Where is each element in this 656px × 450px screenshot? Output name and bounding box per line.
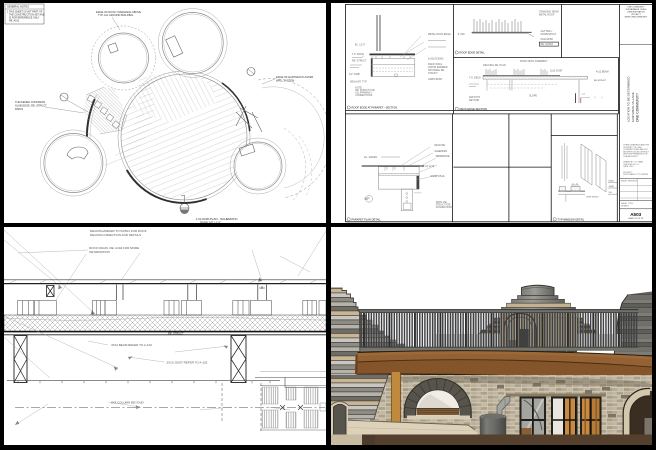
svg-text:GWB FINISH: GWB FINISH (428, 78, 442, 81)
svg-text:LOCATION TO BE DETERMINED: LOCATION TO BE DETERMINED (627, 76, 631, 122)
svg-text:PARAPET PLAN DETAIL: PARAPET PLAN DETAIL (352, 217, 382, 221)
svg-text:JAMB: JAMB (609, 185, 615, 188)
svg-text:DECKING: DECKING (434, 144, 445, 147)
svg-text:RE: STRUCT: RE: STRUCT (594, 80, 607, 82)
svg-text:MEMBRANE: MEMBRANE (436, 155, 450, 158)
svg-text:TYP. ALL AROUND BUILDING: TYP. ALL AROUND BUILDING (98, 13, 133, 17)
svg-text:SLAB EDGE, RE: STRUCT: SLAB EDGE, RE: STRUCT (15, 103, 47, 107)
svg-text:METAL ROOF: METAL ROOF (539, 14, 555, 17)
svg-text:ONE COMMUNITY: ONE COMMUNITY (636, 92, 640, 122)
svg-text:RE: STRUCT: RE: STRUCT (352, 60, 367, 63)
svg-text:8X8 COLUMN BEYOND: 8X8 COLUMN BEYOND (111, 401, 145, 405)
svg-text:ISSUE / REVISION: ISSUE / REVISION (621, 181, 638, 183)
svg-text:EDGE OF EARTHEN PLASTER: EDGE OF EARTHEN PLASTER (276, 75, 313, 79)
svg-text:EL: 12'-0": EL: 12'-0" (355, 44, 365, 47)
svg-text:EL: VARIES: EL: VARIES (364, 156, 377, 159)
svg-text:SLOPE: SLOPE (529, 94, 537, 97)
svg-text:RIGID INSUL: RIGID INSUL (431, 175, 446, 178)
svg-text:STRUCT: STRUCT (428, 72, 438, 75)
svg-text:(2) 2x10: (2) 2x10 (425, 165, 434, 168)
svg-text:EARTHBAG VILLAGE: EARTHBAG VILLAGE (631, 92, 635, 122)
svg-text:4X12 BEAM REFER TO A-102: 4X12 BEAM REFER TO A-102 (111, 343, 152, 347)
svg-text:FASCIA BD: FASCIA BD (541, 38, 554, 41)
svg-text:DECKING RE: PLAN: DECKING RE: PLAN (483, 64, 506, 67)
svg-text:CONNECTIONS: CONNECTIONS (355, 95, 372, 97)
svg-text:CONNECTIONS: CONNECTIONS (436, 207, 453, 209)
svg-text:ROOF EDGE DETAIL: ROOF EDGE DETAIL (460, 51, 486, 55)
svg-text:INFORMATION: INFORMATION (89, 250, 110, 254)
svg-text:SHIM SPACE: SHIM SPACE (586, 196, 599, 199)
svg-text:1'-2": 1'-2" (582, 94, 586, 96)
svg-text:ROOF DECK ASSEMBLY: ROOF DECK ASSEMBLY (520, 60, 548, 63)
svg-text:4x12 BEAM: 4x12 BEAM (596, 71, 609, 74)
svg-text:DOWNSPOUT: DOWNSPOUT (541, 33, 557, 36)
svg-text:SIP: SIP (364, 197, 370, 201)
svg-text:HEAD: HEAD (609, 180, 615, 183)
svg-text:2x BLOCKING: 2x BLOCKING (428, 58, 444, 61)
svg-text:RE: A100: RE: A100 (9, 19, 20, 22)
svg-text:ROOF EDGE AT PARAPET - SECTION: ROOF EDGE AT PARAPET - SECTION (352, 106, 398, 110)
svg-text:WALL SYSTEM: WALL SYSTEM (276, 78, 294, 82)
svg-text:SEALANT, TYP: SEALANT, TYP (350, 81, 367, 84)
svg-text:METAL ROOF EDGE: METAL ROOF EDGE (428, 33, 451, 36)
svg-text:A503: A503 (630, 212, 641, 217)
svg-text:T.O. ROOF: T.O. ROOF (352, 53, 364, 56)
svg-text:DETAILS: DETAILS (621, 204, 629, 207)
svg-text:GENERAL NOTES: GENERAL NOTES (7, 5, 29, 9)
svg-text:DATE: 2015: DATE: 2015 (623, 165, 633, 168)
svg-text:2X10 JOIST REFER TO A-102: 2X10 JOIST REFER TO A-102 (167, 361, 208, 365)
svg-text:TYP WINDOW DETAIL: TYP WINDOW DETAIL (558, 217, 585, 221)
svg-text:THE ARCHITECT.: THE ARCHITECT. (623, 155, 639, 158)
svg-text:SCALE: 1/8" = 1'-0": SCALE: 1/8" = 1'-0" (200, 221, 221, 223)
svg-text:WWW.ONECOMMUNITY: WWW.ONECOMMUNITY (625, 17, 648, 19)
svg-text:DECK EDGE SECTION: DECK EDGE SECTION (460, 107, 488, 111)
svg-text:BEYOND: BEYOND (469, 99, 479, 102)
svg-text:T.O. DECK: T.O. DECK (469, 77, 481, 80)
svg-text:2x10 JOIST: 2x10 JOIST (550, 70, 563, 73)
svg-text:SLEEPERS: SLEEPERS (434, 150, 447, 153)
svg-text:SILL: SILL (609, 192, 614, 194)
svg-text:THICKENED CONCRETE: THICKENED CONCRETE (15, 100, 46, 104)
svg-text:DUPLICABLE CITY CENTER: DUPLICABLE CITY CENTER (623, 173, 648, 176)
svg-text:1/2" GWB: 1/2" GWB (349, 73, 360, 76)
svg-text:2" AFF: 2" AFF (458, 33, 466, 36)
svg-text:RE: STRUCT: RE: STRUCT (168, 332, 184, 336)
svg-text:RE: 3/A503: RE: 3/A503 (541, 43, 554, 46)
svg-text:DWGS: DWGS (15, 107, 23, 111)
svg-text:DECKING DIRECTION AND DETAILS: DECKING DIRECTION AND DETAILS (90, 233, 141, 237)
svg-text:SHEET 14 OF 18: SHEET 14 OF 18 (628, 218, 643, 220)
